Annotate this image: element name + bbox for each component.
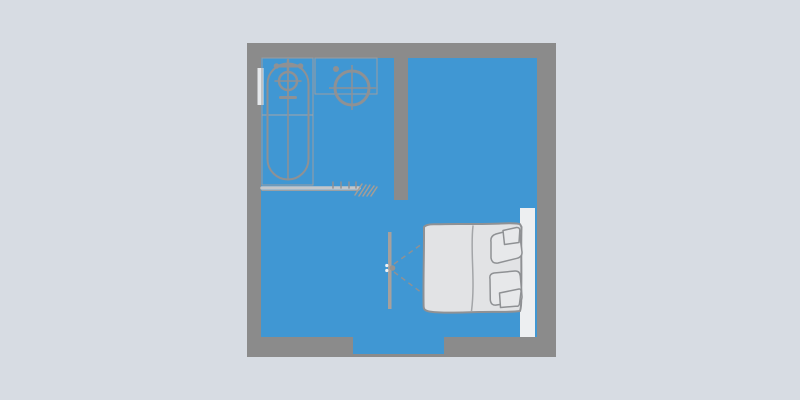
floor-plan-svg [0, 0, 800, 400]
floor-plan-canvas [0, 0, 800, 400]
door-knob-dot [385, 269, 388, 272]
pillow-bottom-icon [490, 271, 522, 308]
interior-wall [394, 58, 408, 200]
door-knob-icon [390, 265, 396, 271]
floor-plan [247, 43, 556, 357]
entrance-opening [353, 337, 444, 354]
door-leaf [388, 232, 392, 309]
washbasin-tap-icon [333, 66, 339, 72]
window-icon [258, 68, 264, 105]
door-knob-dot [385, 264, 388, 267]
